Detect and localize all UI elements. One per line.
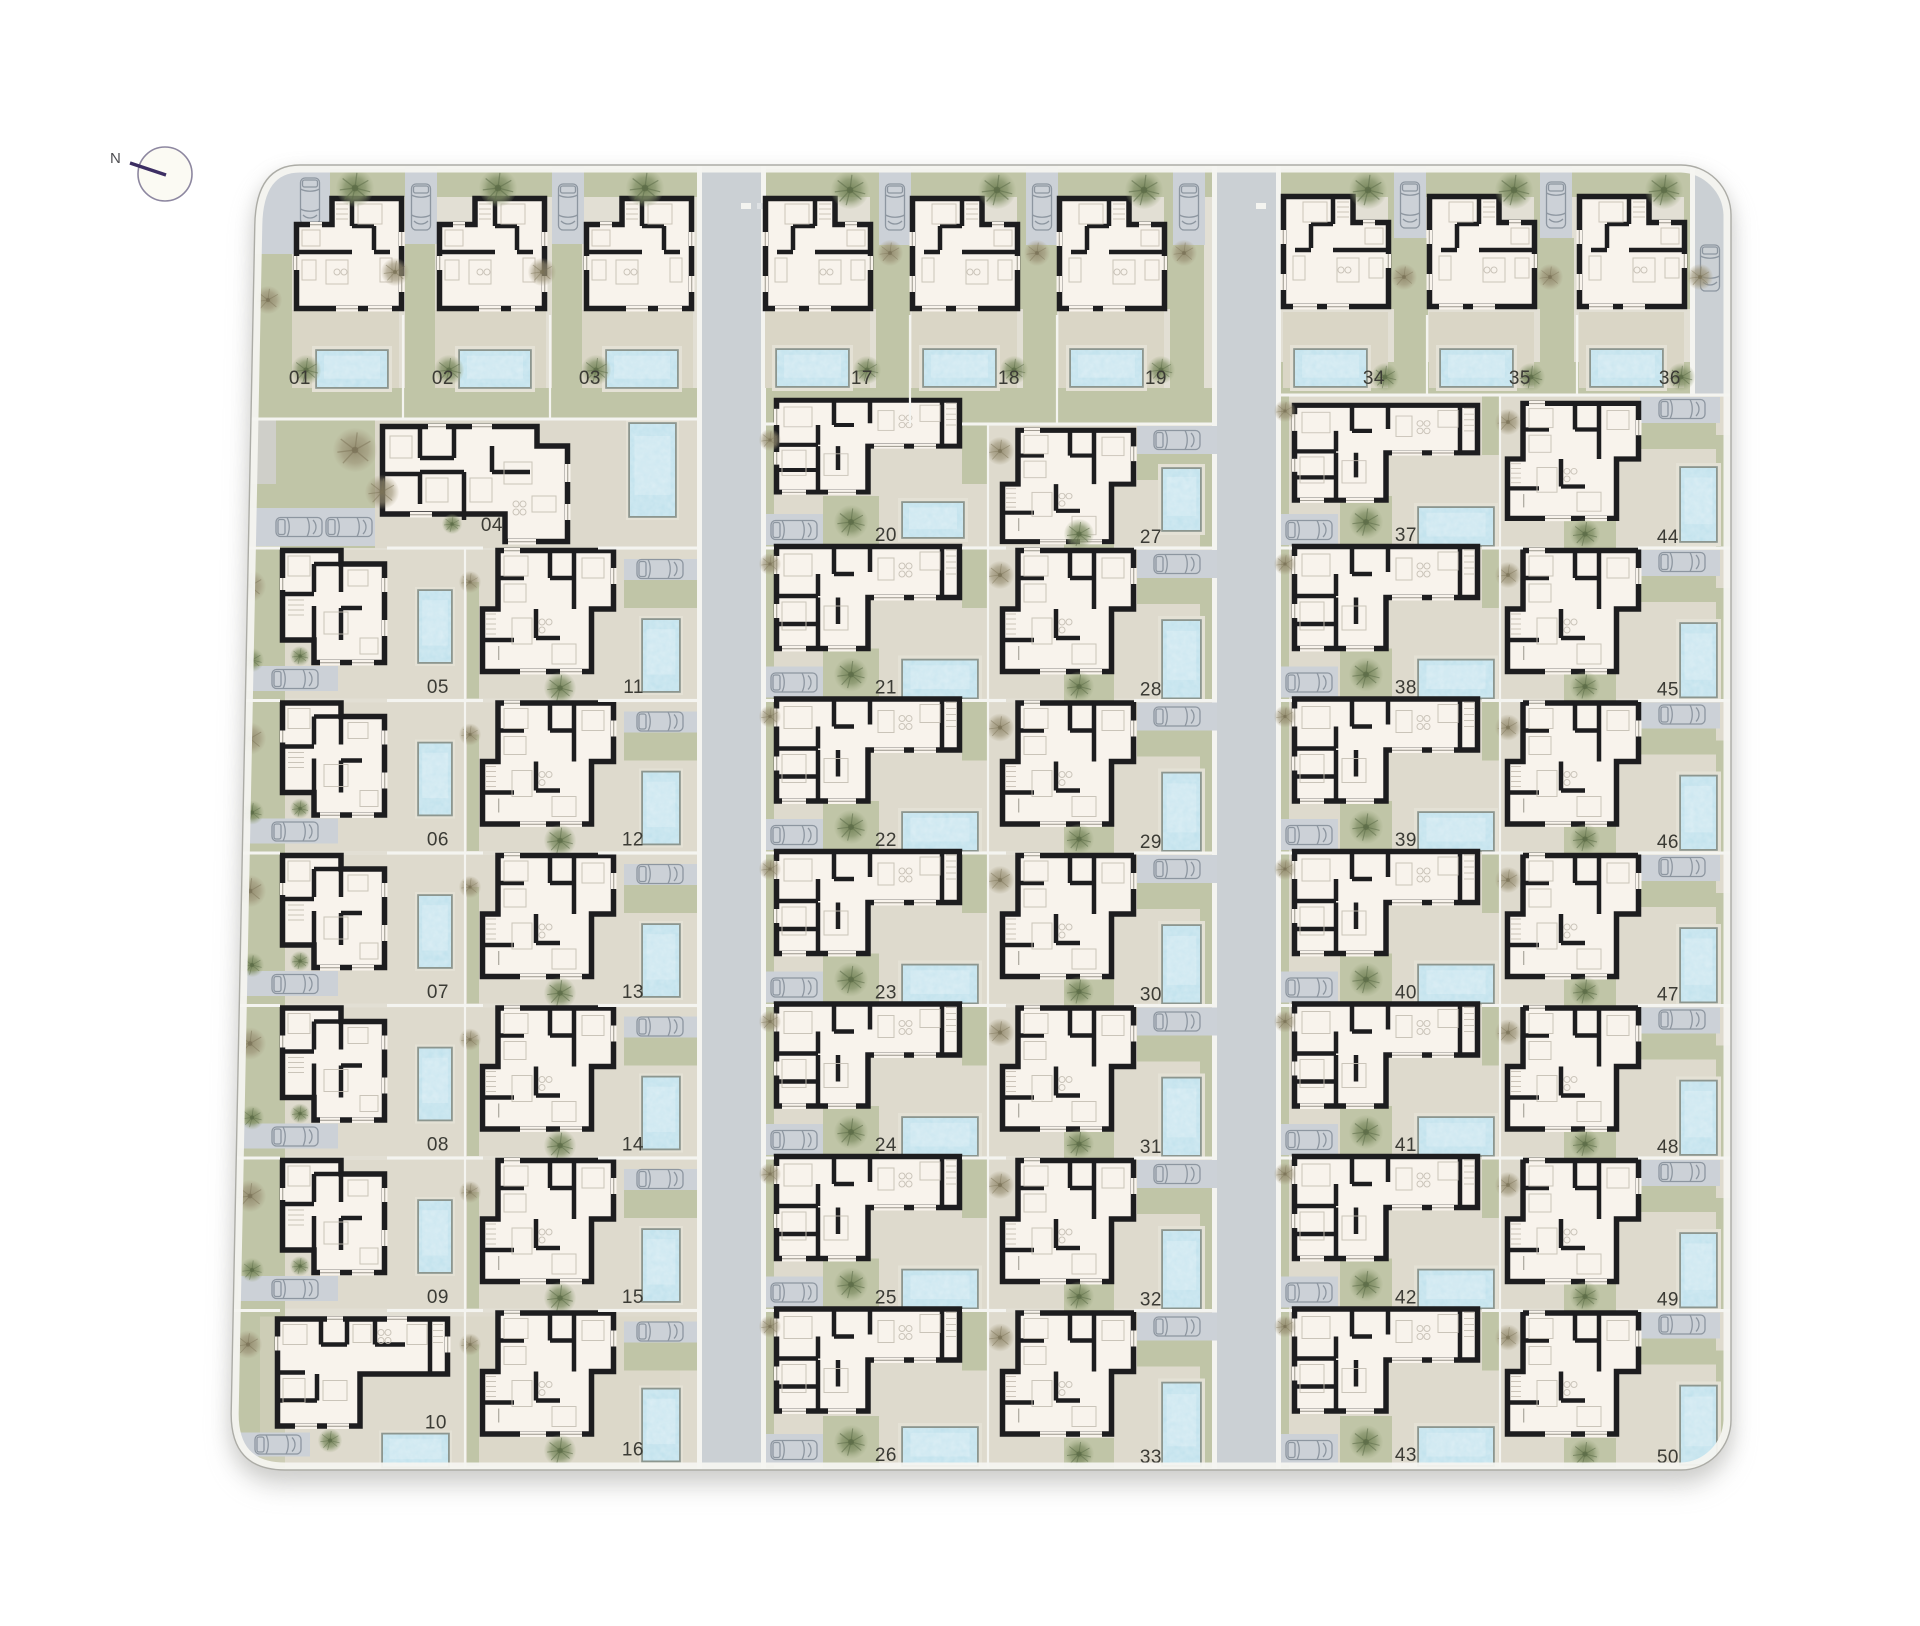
svg-text:48: 48 bbox=[1657, 1137, 1679, 1158]
svg-text:15: 15 bbox=[622, 1287, 644, 1308]
svg-text:32: 32 bbox=[1140, 1290, 1162, 1311]
svg-text:46: 46 bbox=[1657, 832, 1679, 853]
svg-text:44: 44 bbox=[1657, 527, 1679, 548]
svg-text:47: 47 bbox=[1657, 985, 1679, 1006]
svg-text:36: 36 bbox=[1659, 368, 1681, 389]
svg-text:11: 11 bbox=[623, 677, 644, 698]
svg-text:24: 24 bbox=[875, 1135, 897, 1156]
svg-text:12: 12 bbox=[622, 830, 644, 851]
svg-text:02: 02 bbox=[432, 368, 454, 389]
svg-text:40: 40 bbox=[1395, 983, 1417, 1004]
svg-text:05: 05 bbox=[427, 677, 449, 698]
svg-text:42: 42 bbox=[1395, 1288, 1417, 1309]
svg-text:16: 16 bbox=[622, 1440, 644, 1461]
svg-text:41: 41 bbox=[1395, 1135, 1417, 1156]
svg-text:08: 08 bbox=[427, 1135, 449, 1156]
svg-text:N: N bbox=[110, 150, 121, 167]
svg-text:25: 25 bbox=[875, 1288, 897, 1309]
svg-text:38: 38 bbox=[1395, 678, 1417, 699]
svg-text:29: 29 bbox=[1140, 832, 1162, 853]
svg-text:20: 20 bbox=[875, 525, 897, 546]
svg-text:07: 07 bbox=[427, 982, 449, 1003]
svg-text:28: 28 bbox=[1140, 680, 1162, 701]
svg-text:17: 17 bbox=[851, 368, 873, 389]
svg-text:03: 03 bbox=[579, 368, 601, 389]
svg-text:30: 30 bbox=[1140, 985, 1162, 1006]
svg-text:06: 06 bbox=[427, 830, 449, 851]
svg-text:34: 34 bbox=[1363, 368, 1385, 389]
svg-text:31: 31 bbox=[1140, 1137, 1162, 1158]
svg-text:22: 22 bbox=[875, 830, 897, 851]
svg-text:35: 35 bbox=[1509, 368, 1531, 389]
svg-text:23: 23 bbox=[875, 983, 897, 1004]
svg-text:19: 19 bbox=[1145, 368, 1167, 389]
svg-text:18: 18 bbox=[998, 368, 1020, 389]
svg-text:37: 37 bbox=[1395, 525, 1417, 546]
svg-text:39: 39 bbox=[1395, 830, 1417, 851]
svg-text:10: 10 bbox=[425, 1413, 447, 1434]
svg-text:27: 27 bbox=[1140, 527, 1162, 548]
svg-text:45: 45 bbox=[1657, 680, 1679, 701]
svg-text:21: 21 bbox=[875, 678, 897, 699]
svg-text:04: 04 bbox=[481, 515, 503, 536]
svg-text:13: 13 bbox=[622, 982, 644, 1003]
svg-text:09: 09 bbox=[427, 1287, 449, 1308]
svg-text:49: 49 bbox=[1657, 1290, 1679, 1311]
svg-text:01: 01 bbox=[289, 368, 311, 389]
svg-text:14: 14 bbox=[622, 1135, 644, 1156]
